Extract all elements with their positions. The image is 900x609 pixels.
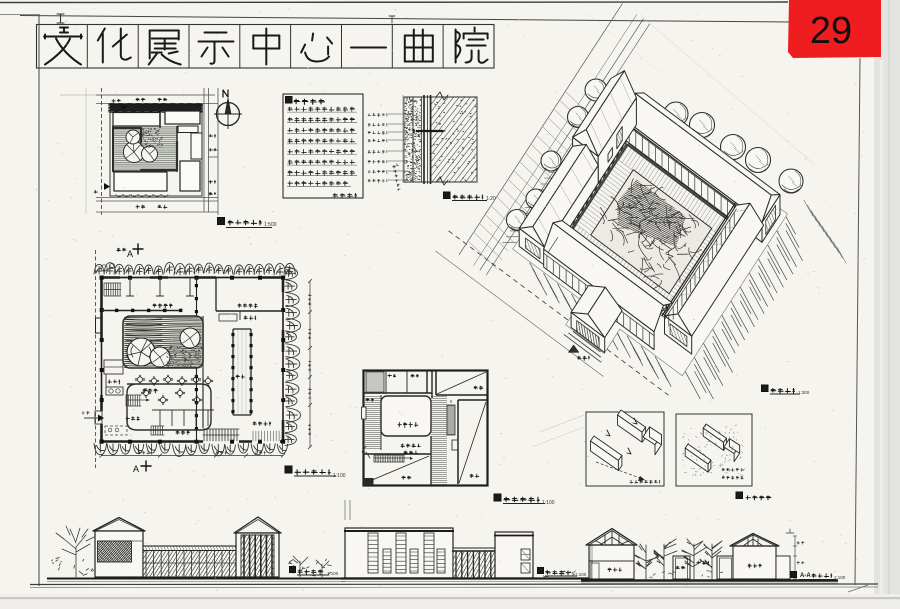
svg-text:1:500: 1:500	[264, 222, 277, 228]
svg-text:29: 29	[810, 10, 852, 52]
svg-text:A: A	[133, 464, 139, 474]
svg-text:1:100: 1:100	[333, 473, 346, 479]
svg-text:A-A: A-A	[800, 573, 811, 579]
svg-text:1:100: 1:100	[542, 500, 555, 506]
svg-text:1:20: 1:20	[486, 196, 496, 202]
svg-text:1:300: 1:300	[798, 390, 810, 395]
svg-text:1:100: 1:100	[327, 571, 339, 576]
svg-text:A: A	[127, 249, 133, 259]
svg-text:1:100: 1:100	[834, 575, 846, 580]
svg-text:1:100: 1:100	[575, 572, 587, 577]
